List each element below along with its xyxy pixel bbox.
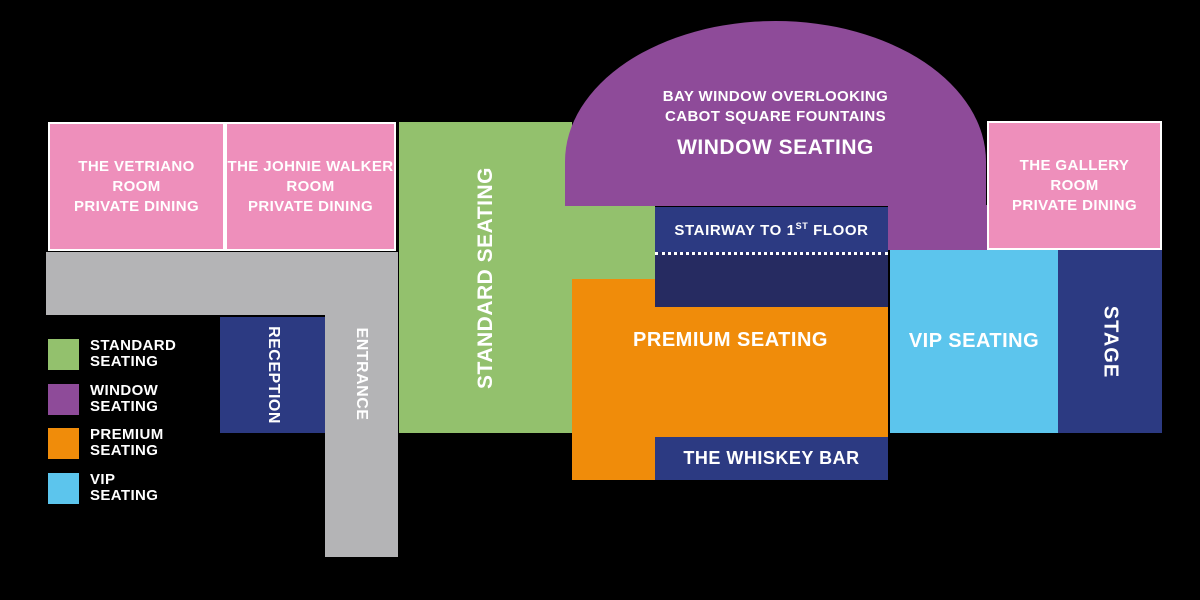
gallery-room-label-line3: PRIVATE DINING — [1012, 196, 1137, 216]
stairway-area: STAIRWAY TO 1ST FLOOR — [655, 207, 888, 252]
johnie-walker-room-label-line2: ROOM — [286, 177, 334, 197]
johnie-walker-room: THE JOHNIE WALKER ROOM PRIVATE DINING — [225, 122, 396, 251]
premium-seating-label: PREMIUM SEATING — [573, 329, 888, 352]
legend-swatch-standard-seating — [48, 339, 79, 370]
legend-swatch-vip-seating — [48, 473, 79, 504]
legend-label-window: WINDOW SEATING — [90, 383, 158, 415]
legend-swatch-window-seating — [48, 384, 79, 415]
entrance-label: ENTRANCE — [352, 328, 370, 421]
reception-label: RECEPTION — [264, 326, 282, 424]
vetriano-room-label-line2: ROOM — [112, 177, 160, 197]
whiskey-bar-area: THE WHISKEY BAR — [655, 437, 888, 480]
standard-seating-extension — [571, 206, 655, 280]
legend-label-premium: PREMIUM SEATING — [90, 427, 164, 459]
window-seating-right-wing — [888, 205, 987, 250]
vetriano-room-label-line3: PRIVATE DINING — [74, 197, 199, 217]
legend-item-window: WINDOW SEATING — [48, 383, 158, 415]
stairway-label-superscript: ST — [796, 221, 809, 231]
gallery-room: THE GALLERY ROOM PRIVATE DINING — [987, 121, 1162, 250]
bay-window-caption-line2: CABOT SQUARE FOUNTAINS — [565, 107, 986, 127]
legend-swatch-premium-seating — [48, 428, 79, 459]
window-seating-text-block: BAY WINDOW OVERLOOKING CABOT SQUARE FOUN… — [565, 21, 986, 160]
standard-seating-label: STANDARD SEATING — [474, 167, 498, 389]
stairway-label: STAIRWAY TO 1ST FLOOR — [674, 221, 868, 239]
window-seating-area: BAY WINDOW OVERLOOKING CABOT SQUARE FOUN… — [565, 21, 986, 206]
vip-seating-label: VIP SEATING — [909, 330, 1039, 353]
whiskey-bar-label: THE WHISKEY BAR — [683, 448, 859, 469]
window-seating-label: WINDOW SEATING — [565, 136, 986, 160]
vetriano-room-label-line1: THE VETRIANO — [78, 157, 194, 177]
johnie-walker-room-label-line3: PRIVATE DINING — [248, 197, 373, 217]
standard-seating-area: STANDARD SEATING — [399, 122, 572, 433]
venue-floor-plan: THE VETRIANO ROOM PRIVATE DINING THE JOH… — [0, 0, 1200, 600]
legend-item-premium: PREMIUM SEATING — [48, 427, 164, 459]
stage-label: STAGE — [1099, 305, 1122, 377]
stage-area: STAGE — [1058, 250, 1162, 433]
reception-area: RECEPTION — [220, 317, 325, 433]
premium-seating-area — [655, 307, 888, 437]
legend-label-vip: VIP SEATING — [90, 472, 158, 504]
johnie-walker-room-label-line1: THE JOHNIE WALKER — [228, 157, 394, 177]
legend-item-standard: STANDARD SEATING — [48, 338, 176, 370]
vetriano-room: THE VETRIANO ROOM PRIVATE DINING — [48, 122, 225, 251]
legend-label-standard: STANDARD SEATING — [90, 338, 176, 370]
legend-item-vip: VIP SEATING — [48, 472, 158, 504]
stairway-understairs-area — [655, 252, 888, 307]
bay-window-caption-line1: BAY WINDOW OVERLOOKING — [565, 87, 986, 107]
premium-seating-area-left — [572, 279, 655, 480]
vip-seating-area: VIP SEATING — [890, 250, 1058, 433]
gallery-room-label-line1: THE GALLERY — [1020, 156, 1130, 176]
gallery-room-label-line2: ROOM — [1050, 176, 1098, 196]
